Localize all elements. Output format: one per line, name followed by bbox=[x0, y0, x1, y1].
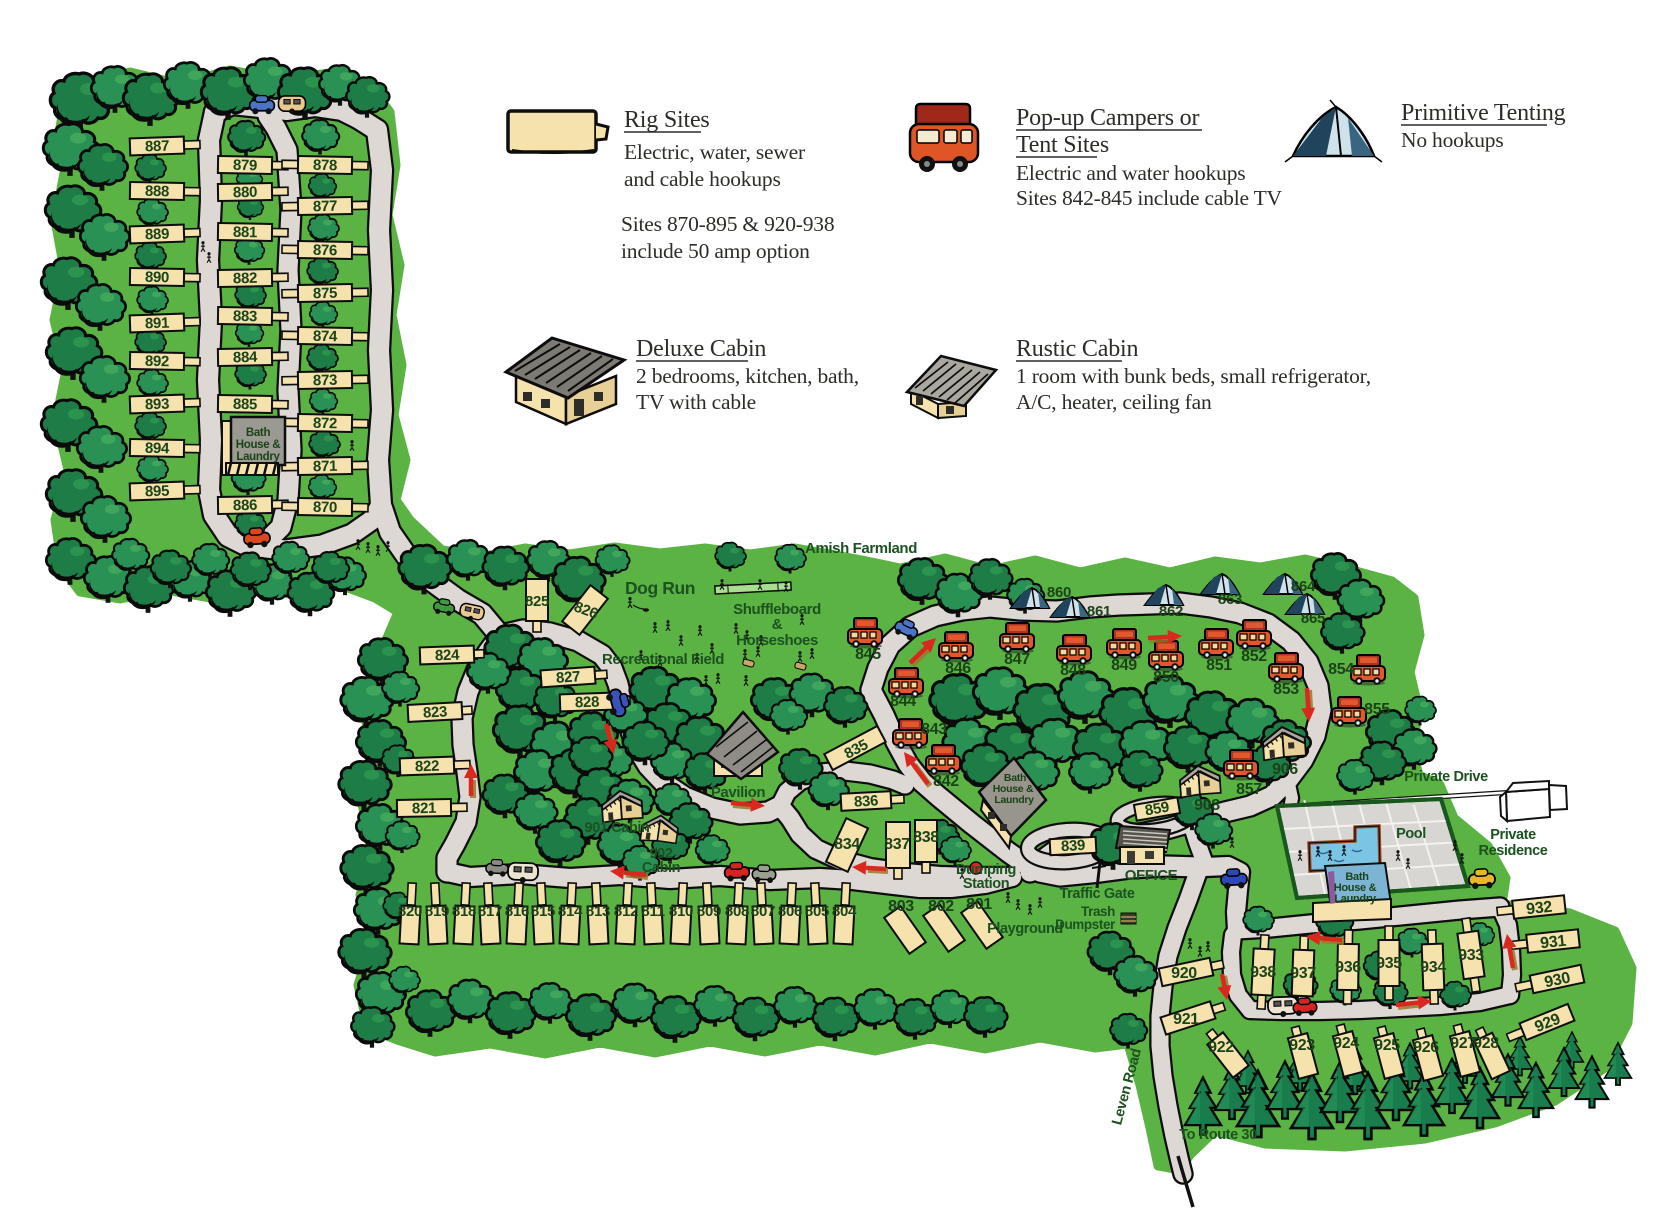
svg-text:818: 818 bbox=[452, 903, 476, 920]
svg-text:846: 846 bbox=[945, 660, 971, 677]
svg-text:A/C, heater, ceiling fan: A/C, heater, ceiling fan bbox=[1016, 390, 1212, 414]
svg-text:884: 884 bbox=[233, 349, 258, 366]
svg-text:815: 815 bbox=[531, 903, 555, 920]
svg-text:808: 808 bbox=[725, 903, 749, 920]
svg-text:886: 886 bbox=[233, 497, 257, 514]
svg-text:804: 804 bbox=[832, 903, 857, 920]
svg-text:845: 845 bbox=[855, 646, 881, 663]
svg-text:838: 838 bbox=[913, 829, 939, 846]
svg-text:Private Drive: Private Drive bbox=[1404, 769, 1488, 785]
svg-text:864: 864 bbox=[1291, 578, 1316, 595]
svg-text:936: 936 bbox=[1335, 959, 1361, 976]
svg-text:853: 853 bbox=[1273, 681, 1299, 698]
svg-text:To Route 30: To Route 30 bbox=[1179, 1127, 1257, 1143]
svg-text:814: 814 bbox=[558, 903, 583, 920]
svg-text:817: 817 bbox=[478, 903, 502, 920]
svg-text:931: 931 bbox=[1539, 933, 1567, 953]
svg-text:876: 876 bbox=[313, 242, 337, 259]
svg-text:871: 871 bbox=[313, 458, 337, 475]
svg-text:2 bedrooms, kitchen, bath,: 2 bedrooms, kitchen, bath, bbox=[636, 364, 859, 388]
svg-text:836: 836 bbox=[854, 792, 879, 810]
svg-text:801: 801 bbox=[966, 896, 992, 913]
svg-text:889: 889 bbox=[145, 226, 170, 244]
svg-text:Laundry: Laundry bbox=[1334, 893, 1376, 905]
svg-text:878: 878 bbox=[313, 157, 337, 174]
svg-text:Residence: Residence bbox=[1479, 843, 1548, 859]
svg-text:854: 854 bbox=[1328, 661, 1354, 678]
svg-text:857: 857 bbox=[1236, 781, 1262, 798]
svg-text:862: 862 bbox=[1159, 603, 1183, 620]
svg-text:813: 813 bbox=[586, 903, 610, 920]
svg-text:803: 803 bbox=[888, 898, 914, 915]
svg-text:Dumpster: Dumpster bbox=[1055, 917, 1116, 932]
svg-text:Dog Run: Dog Run bbox=[625, 578, 695, 598]
svg-text:811: 811 bbox=[641, 903, 664, 920]
svg-text:809: 809 bbox=[697, 903, 721, 920]
svg-text:882: 882 bbox=[233, 270, 257, 287]
svg-text:879: 879 bbox=[233, 157, 257, 174]
svg-text:920: 920 bbox=[1171, 965, 1197, 982]
svg-text:922: 922 bbox=[1208, 1039, 1234, 1056]
svg-text:881: 881 bbox=[233, 224, 257, 241]
svg-text:Primitive Tenting: Primitive Tenting bbox=[1401, 100, 1566, 126]
svg-text:823: 823 bbox=[423, 703, 448, 721]
svg-text:895: 895 bbox=[145, 483, 170, 501]
svg-text:893: 893 bbox=[145, 396, 170, 414]
svg-text:890: 890 bbox=[145, 269, 169, 286]
svg-text:Laundry: Laundry bbox=[236, 451, 280, 463]
svg-text:875: 875 bbox=[313, 285, 337, 302]
svg-text:1 room with bunk beds, small r: 1 room with bunk beds, small refrigerato… bbox=[1016, 364, 1371, 388]
svg-text:843: 843 bbox=[921, 721, 947, 738]
svg-text:926: 926 bbox=[1413, 1039, 1439, 1056]
svg-text:Traffic Gate: Traffic Gate bbox=[1060, 886, 1135, 902]
svg-text:Playground: Playground bbox=[987, 921, 1063, 937]
svg-text:872: 872 bbox=[313, 415, 337, 432]
svg-text:865: 865 bbox=[1301, 610, 1325, 627]
svg-text:874: 874 bbox=[313, 328, 338, 345]
svg-text:House &: House & bbox=[236, 439, 281, 451]
svg-text:Sites 870-895 & 920-938: Sites 870-895 & 920-938 bbox=[621, 212, 834, 236]
svg-text:816: 816 bbox=[505, 903, 529, 920]
svg-text:OFFICE: OFFICE bbox=[1125, 867, 1178, 884]
svg-text:925: 925 bbox=[1374, 1037, 1400, 1054]
svg-text:822: 822 bbox=[415, 758, 440, 776]
svg-text:928: 928 bbox=[1473, 1035, 1499, 1052]
svg-text:820: 820 bbox=[398, 903, 422, 920]
svg-text:861: 861 bbox=[1087, 603, 1111, 620]
svg-text:883: 883 bbox=[233, 308, 257, 325]
svg-text:837: 837 bbox=[884, 836, 910, 853]
svg-text:Electric and water hookups: Electric and water hookups bbox=[1016, 161, 1245, 185]
svg-text:888: 888 bbox=[145, 183, 169, 200]
svg-text:851: 851 bbox=[1206, 657, 1232, 674]
svg-text:No hookups: No hookups bbox=[1401, 128, 1504, 152]
svg-text:852: 852 bbox=[1241, 648, 1267, 665]
svg-text:825: 825 bbox=[525, 593, 549, 610]
svg-text:937: 937 bbox=[1290, 965, 1316, 982]
svg-text:819: 819 bbox=[425, 903, 449, 920]
svg-text:Rig Sites: Rig Sites bbox=[624, 107, 710, 133]
svg-text:892: 892 bbox=[145, 353, 169, 370]
svg-text:&: & bbox=[772, 616, 783, 633]
svg-text:938: 938 bbox=[1250, 964, 1276, 981]
svg-text:TV with cable: TV with cable bbox=[636, 390, 756, 414]
svg-text:Recreational Field: Recreational Field bbox=[602, 651, 724, 668]
svg-text:894: 894 bbox=[145, 440, 170, 457]
svg-text:and cable hookups: and cable hookups bbox=[624, 167, 781, 191]
svg-text:824: 824 bbox=[435, 647, 461, 665]
svg-text:932: 932 bbox=[1525, 899, 1553, 919]
svg-text:855: 855 bbox=[1364, 701, 1390, 718]
svg-text:Bath: Bath bbox=[246, 427, 271, 439]
svg-text:802: 802 bbox=[928, 898, 954, 915]
svg-text:827: 827 bbox=[555, 668, 580, 687]
svg-text:Electric, water, sewer: Electric, water, sewer bbox=[624, 140, 805, 164]
svg-text:812: 812 bbox=[614, 903, 638, 920]
svg-text:906: 906 bbox=[1272, 761, 1298, 778]
svg-text:880: 880 bbox=[233, 184, 257, 201]
svg-text:921: 921 bbox=[1173, 1011, 1199, 1028]
svg-text:844: 844 bbox=[890, 693, 916, 710]
svg-text:828: 828 bbox=[575, 694, 600, 712]
svg-text:850: 850 bbox=[1153, 669, 1179, 686]
svg-text:Pool: Pool bbox=[1396, 826, 1426, 842]
svg-text:Station: Station bbox=[963, 876, 1009, 892]
svg-text:935: 935 bbox=[1376, 955, 1402, 972]
svg-text:810: 810 bbox=[669, 903, 693, 920]
svg-text:Laundry: Laundry bbox=[994, 794, 1034, 806]
svg-text:863: 863 bbox=[1218, 591, 1242, 608]
svg-text:847: 847 bbox=[1004, 651, 1030, 668]
svg-text:885: 885 bbox=[233, 396, 257, 413]
svg-text:873: 873 bbox=[313, 372, 337, 389]
svg-text:839: 839 bbox=[1061, 837, 1086, 855]
svg-text:Pop-up Campers or: Pop-up Campers or bbox=[1016, 105, 1199, 131]
svg-text:849: 849 bbox=[1111, 657, 1137, 674]
svg-text:Horseshoes: Horseshoes bbox=[736, 632, 818, 649]
svg-text:Amish Farmland: Amish Farmland bbox=[805, 540, 917, 557]
svg-text:848: 848 bbox=[1060, 662, 1086, 679]
svg-text:842: 842 bbox=[933, 773, 959, 790]
svg-text:Deluxe Cabin: Deluxe Cabin bbox=[636, 336, 766, 362]
svg-text:include 50 amp option: include 50 amp option bbox=[621, 239, 810, 263]
svg-text:Sites 842-845 include cable TV: Sites 842-845 include cable TV bbox=[1016, 186, 1283, 210]
svg-text:887: 887 bbox=[145, 138, 170, 156]
svg-text:908: 908 bbox=[1194, 797, 1220, 814]
svg-text:870: 870 bbox=[313, 499, 337, 516]
svg-text:923: 923 bbox=[1289, 1037, 1315, 1054]
svg-text:924: 924 bbox=[1333, 1035, 1359, 1052]
svg-text:806: 806 bbox=[778, 903, 802, 920]
svg-text:934: 934 bbox=[1420, 959, 1446, 976]
svg-text:834: 834 bbox=[834, 836, 860, 853]
svg-text:933: 933 bbox=[1458, 947, 1484, 964]
svg-text:Rustic Cabin: Rustic Cabin bbox=[1016, 336, 1138, 362]
svg-text:Tent Sites: Tent Sites bbox=[1016, 132, 1109, 158]
svg-text:877: 877 bbox=[313, 198, 337, 215]
svg-text:Cabin: Cabin bbox=[642, 860, 680, 876]
svg-text:Private: Private bbox=[1490, 827, 1536, 843]
svg-text:Pavilion: Pavilion bbox=[711, 784, 766, 801]
svg-text:805: 805 bbox=[805, 903, 829, 920]
svg-text:821: 821 bbox=[412, 800, 436, 817]
svg-text:891: 891 bbox=[145, 315, 170, 333]
svg-text:807: 807 bbox=[751, 903, 775, 920]
svg-text:901 Cabin: 901 Cabin bbox=[585, 820, 650, 836]
